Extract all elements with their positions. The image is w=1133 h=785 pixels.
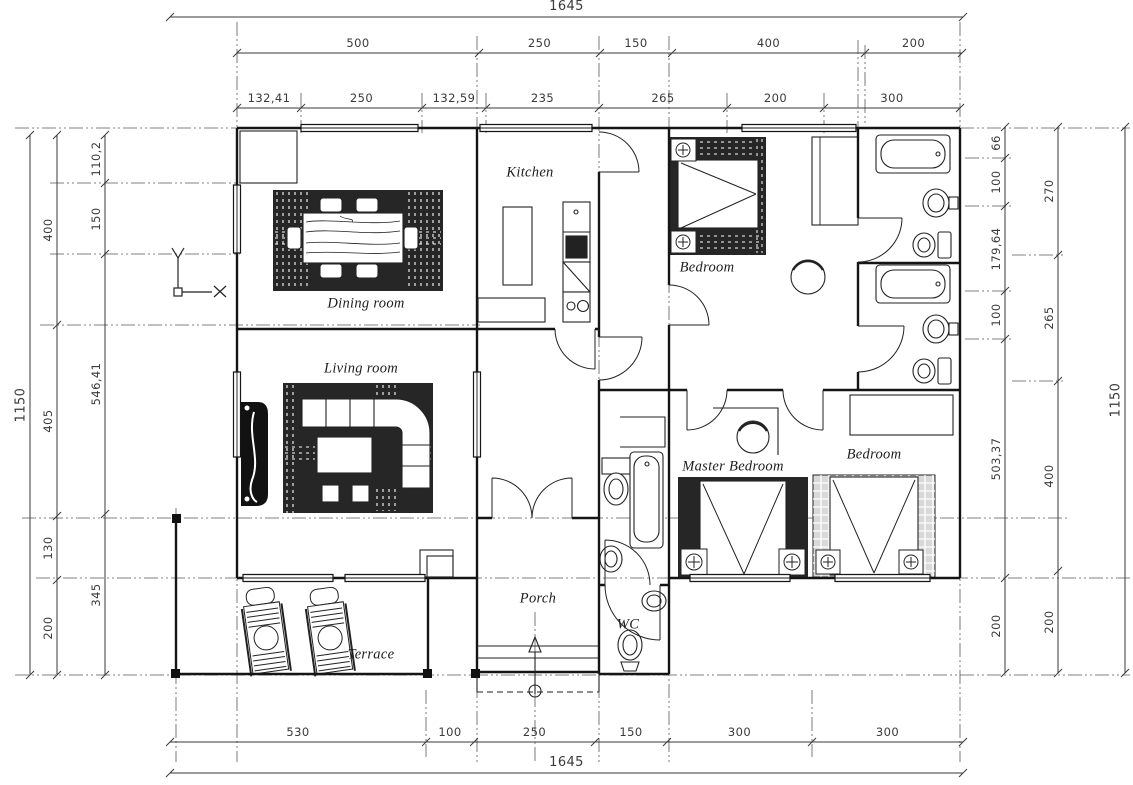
room-label-dining: Dining room — [327, 296, 404, 313]
dimension-label: 400 — [757, 36, 780, 50]
master-bedroom-furniture — [678, 408, 808, 577]
coffee-table — [317, 437, 372, 473]
sink — [600, 546, 622, 572]
wardrobe — [812, 137, 858, 225]
toilet-cistern — [938, 232, 951, 258]
dimension-label: 110,2 — [89, 142, 103, 177]
dimension-label: 100 — [989, 303, 1003, 326]
sink-basin — [566, 236, 587, 258]
dimension-label: 200 — [989, 614, 1003, 637]
bed — [700, 481, 786, 577]
dimension-label: 100 — [438, 725, 461, 739]
bathroom-2 — [876, 265, 958, 384]
kitchen-island — [503, 207, 532, 285]
floor-plan-canvas: Kitchen Dining room Living room Bedroom … — [0, 0, 1133, 785]
ottoman — [322, 485, 339, 502]
kitchen-counter — [478, 298, 545, 322]
dimension-label: 200 — [764, 91, 787, 105]
dimension-label: 503,37 — [989, 437, 1003, 480]
room-label-bedroom-top: Bedroom — [680, 260, 735, 277]
dimension-label: 345 — [89, 583, 103, 606]
dimension-label: 179,64 — [989, 227, 1003, 270]
dimension-label: 200 — [902, 36, 925, 50]
dimension-label: 150 — [89, 207, 103, 230]
dimension-label: 1645 — [549, 755, 584, 770]
dining-chair — [287, 227, 301, 249]
dimension-label: 1150 — [14, 388, 29, 423]
dining-chair — [404, 227, 418, 249]
bedroom-right-furniture — [813, 395, 953, 577]
toilet-cistern — [938, 358, 951, 384]
dining-chair — [356, 198, 378, 212]
floor-plan-drawing — [0, 0, 1133, 785]
bathroom-1 — [876, 135, 958, 258]
sink — [923, 315, 949, 343]
lounge-chair — [239, 586, 291, 677]
dimension-label: 1150 — [1109, 383, 1124, 418]
dimension-label: 132,59 — [433, 91, 476, 105]
dimension-label: 200 — [1042, 610, 1056, 633]
origin-icon — [174, 288, 182, 296]
dimension-label: 400 — [41, 218, 55, 241]
toilet — [913, 233, 935, 257]
bathtub — [876, 265, 950, 303]
toilet-cistern — [602, 458, 630, 474]
room-label-bedroom-right: Bedroom — [847, 447, 902, 464]
dimension-label: 100 — [989, 170, 1003, 193]
dimension-label: 530 — [286, 725, 309, 739]
closet-niche — [620, 417, 665, 447]
dimension-label: 546,41 — [89, 363, 103, 406]
dimension-label: 200 — [41, 616, 55, 639]
dimension-label: 150 — [619, 725, 642, 739]
dimension-label: 265 — [651, 91, 674, 105]
dimension-label: 270 — [1042, 179, 1056, 202]
dining-chair — [320, 264, 342, 278]
kitchen-furniture — [478, 202, 590, 322]
dimension-label: 300 — [728, 725, 751, 739]
dimension-label: 130 — [41, 536, 55, 559]
room-label-porch: Porch — [520, 591, 556, 608]
x-axis-icon — [178, 286, 226, 297]
dimension-label: 235 — [531, 91, 554, 105]
room-label-kitchen: Kitchen — [506, 165, 553, 182]
dimension-label: 132,41 — [248, 91, 291, 105]
piano — [241, 402, 268, 506]
dining-closet — [240, 131, 297, 183]
room-label-master: Master Bedroom — [682, 459, 784, 476]
chair-back — [793, 261, 823, 270]
faucet — [574, 210, 578, 214]
room-label-wc: WC — [617, 617, 639, 634]
porch-steps — [420, 550, 599, 692]
dining-chair — [356, 264, 378, 278]
dimension-label: 1645 — [549, 0, 584, 14]
bathtub — [876, 135, 950, 173]
dimension-label: 250 — [523, 725, 546, 739]
toilet — [604, 473, 628, 505]
sink — [642, 591, 666, 611]
room-label-living: Living room — [324, 361, 398, 378]
dimension-label: 400 — [1042, 464, 1056, 487]
sink — [923, 189, 949, 217]
ottoman — [352, 485, 369, 502]
toilet-base — [621, 662, 639, 671]
dimension-label: 300 — [876, 725, 899, 739]
dresser — [850, 395, 953, 435]
ucs-icon — [172, 248, 226, 297]
dining-chair — [320, 198, 342, 212]
dimension-label: 405 — [41, 409, 55, 432]
toilet — [913, 359, 935, 383]
dimension-label: 250 — [350, 91, 373, 105]
dimension-label: 250 — [528, 36, 551, 50]
dimension-label: 500 — [346, 36, 369, 50]
room-label-terrace: Terrace — [348, 647, 395, 664]
centerline-grid — [15, 22, 1130, 762]
dimension-label: 265 — [1042, 306, 1056, 329]
dimension-label: 150 — [624, 36, 647, 50]
dimension-label: 66 — [989, 135, 1003, 150]
y-axis-icon — [172, 248, 184, 292]
dining-table — [303, 213, 403, 263]
bed — [678, 160, 758, 228]
dimension-label: 300 — [880, 91, 903, 105]
